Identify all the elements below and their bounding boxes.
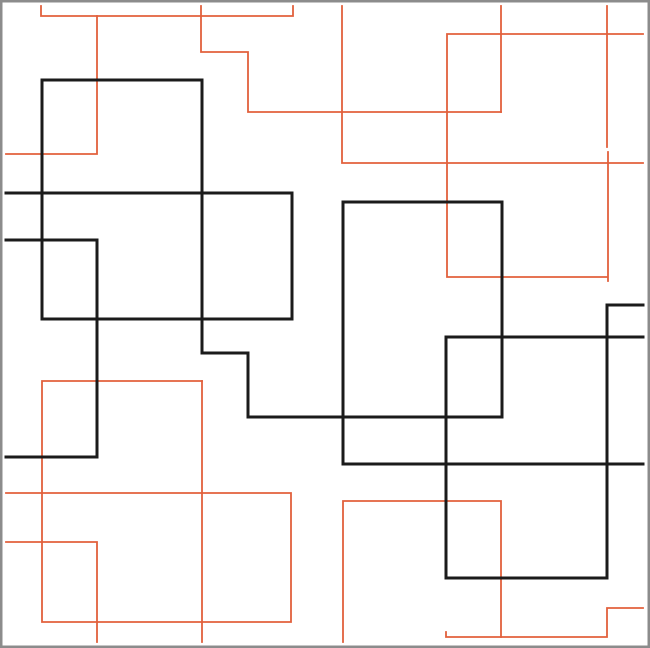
drawing-stage — [0, 0, 650, 648]
rectangles-drawing-canvas — [0, 0, 650, 648]
